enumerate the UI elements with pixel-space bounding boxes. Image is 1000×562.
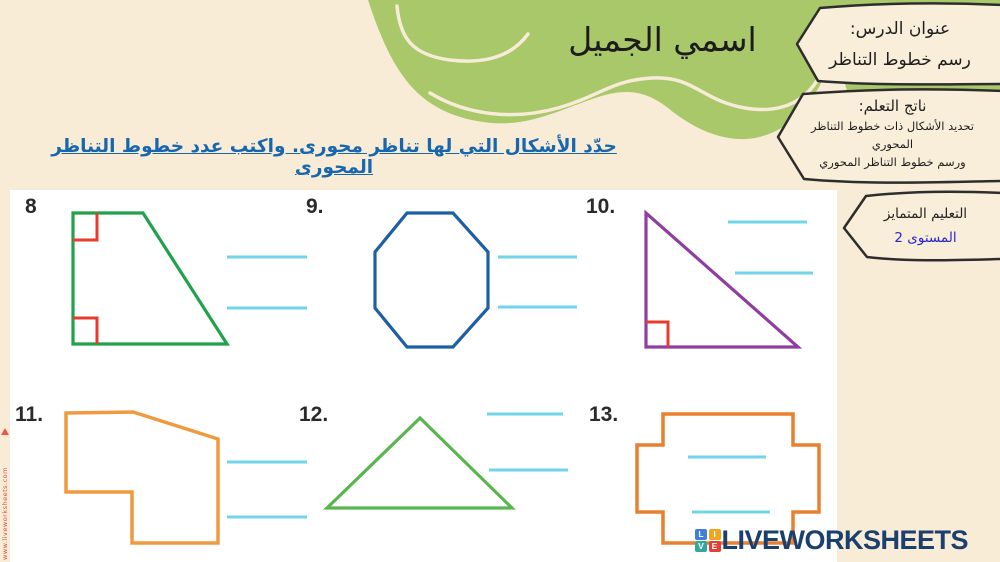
item-number-11: 11. <box>15 403 43 427</box>
lesson-title-label: عنوان الدرس: <box>805 14 995 45</box>
logo-blocks-icon: L I V E <box>695 529 721 553</box>
page-title: اسمي الجميل <box>545 20 780 59</box>
shapes-canvas <box>10 190 837 562</box>
learning-outcome-label: ناتج التعلم: <box>790 97 995 115</box>
shape-12-triangle[interactable] <box>327 418 512 508</box>
learning-outcome-box: ناتج التعلم: تحديد الأشكال ذات خطوط التن… <box>790 97 995 171</box>
logo-text: LIVEWORKSHEETS <box>722 525 969 556</box>
shapes-panel: 8 9. 10. 11. 12. 13. <box>10 190 837 562</box>
instruction-text: حدّد الأشكال التي لها تناظر محورى. واكتب… <box>38 136 630 178</box>
worksheet-page: اسمي الجميل عنوان الدرس: رسم خطوط التناظ… <box>0 0 1000 562</box>
logo-block-i: I <box>709 529 721 540</box>
left-watermark: www.liveworksheets.com <box>1 438 9 560</box>
right-angle-mark-10 <box>646 322 668 347</box>
item-number-8: 8 <box>25 195 37 219</box>
shape-13-cross[interactable] <box>637 414 819 543</box>
learning-outcome-line2: تحديد الأشكال ذات خطوط التناظر المحوري <box>790 118 995 154</box>
logo-block-l: L <box>695 529 707 540</box>
differentiated-box: التعليم المتمايز المستوى 2 <box>858 203 993 250</box>
item-number-9: 9. <box>306 195 324 219</box>
item-number-13: 13. <box>589 403 618 427</box>
item-number-12: 12. <box>299 403 328 427</box>
differentiated-label: التعليم المتمايز <box>858 203 993 227</box>
shape-9-octagon[interactable] <box>375 213 488 347</box>
right-angle-mark-8-top <box>73 213 97 240</box>
right-angle-mark-8-bottom <box>73 318 97 344</box>
logo-block-v: V <box>695 541 707 552</box>
lesson-title-box: عنوان الدرس: رسم خطوط التناظر <box>805 14 995 77</box>
level-label: المستوى 2 <box>858 227 993 251</box>
learning-outcome-line3: ورسم خطوط التناظر المحوري <box>790 154 995 172</box>
liveworksheets-logo[interactable]: L I V E LIVEWORKSHEETS <box>695 525 968 556</box>
watermark-mark-icon <box>1 428 9 435</box>
logo-block-e: E <box>709 541 721 552</box>
shape-11-irregular-polygon[interactable] <box>66 412 218 543</box>
lesson-title-value: رسم خطوط التناظر <box>805 45 995 76</box>
item-number-10: 10. <box>586 195 615 219</box>
